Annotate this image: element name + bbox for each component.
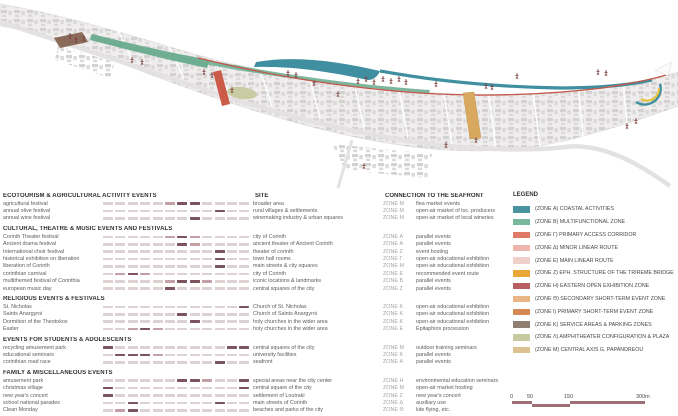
month-cell [165, 409, 175, 412]
month-cell [140, 250, 150, 253]
month-cell [103, 258, 113, 261]
month-cell [227, 210, 237, 213]
connection-cell: parallel events [416, 234, 508, 240]
month-cell [165, 328, 175, 331]
event-row: Ancient drama festivalancient theater of… [3, 241, 508, 248]
scale-segment [532, 404, 570, 407]
month-cell [227, 280, 237, 283]
month-cell [177, 354, 187, 357]
month-matrix [103, 361, 253, 364]
section-header-row: FAMILY & MISCELLANEOUS EVENTS [3, 368, 508, 376]
site-cell: Church of Saints Anargyroi [253, 311, 383, 317]
month-cell [190, 202, 200, 205]
connection-cell: auxiliary use [416, 400, 508, 406]
event-row: annual wine festivalwinemaking industry … [3, 215, 508, 222]
event-row: school national paradesmain streets of C… [3, 399, 508, 406]
month-cell [103, 236, 113, 239]
month-cell [239, 202, 249, 205]
month-cell [215, 280, 225, 283]
zone-cell: ZONE Μ [383, 208, 416, 214]
event-row: amusement parkspecial areas near the cit… [3, 377, 508, 384]
event-label: Corinth Theater festival [3, 234, 103, 240]
event-row: corinthian carnivalcity of CorinthZONE Ε… [3, 270, 508, 277]
month-cell [115, 210, 125, 213]
month-cell [153, 409, 163, 412]
month-cell [153, 313, 163, 316]
month-cell [128, 379, 138, 382]
event-row: european music daycentral squares of the… [3, 285, 508, 292]
site-cell: city of Corinth [253, 234, 383, 240]
month-cell [128, 354, 138, 357]
month-cell [177, 250, 187, 253]
month-cell [153, 402, 163, 405]
month-cell [202, 313, 212, 316]
month-cell [190, 313, 200, 316]
month-cell [177, 379, 187, 382]
month-matrix [103, 346, 253, 349]
month-cell [177, 402, 187, 405]
month-cell [140, 202, 150, 205]
month-cell [115, 387, 125, 390]
legend-label: (ZONE Α) COASTAL ACTIVITIES [535, 206, 614, 212]
connection-cell: open-air market of loc. producers [416, 208, 508, 214]
month-cell [103, 313, 113, 316]
site-cell: seafront [253, 359, 383, 365]
event-label: Saints Anargyroi [3, 311, 103, 317]
event-row: St. NicholasChurch of St. NicholasZONE Κ… [3, 303, 508, 310]
month-cell [227, 236, 237, 239]
month-cell [153, 354, 163, 357]
month-cell [190, 354, 200, 357]
month-cell [190, 250, 200, 253]
month-cell [128, 202, 138, 205]
zone-cell: ZONE Η [383, 378, 416, 384]
month-cell [115, 236, 125, 239]
event-row: christmas villagecentral square of the c… [3, 384, 508, 391]
month-cell [103, 287, 113, 290]
month-matrix [103, 394, 253, 397]
month-matrix [103, 306, 253, 309]
month-cell [227, 265, 237, 268]
section-header: FAMILY & MISCELLANEOUS EVENTS [3, 370, 255, 376]
month-cell [140, 313, 150, 316]
month-cell [153, 287, 163, 290]
connection-cell: new year's concert [416, 393, 508, 399]
site-cell: main streets & city squares [253, 263, 383, 269]
month-cell [215, 273, 225, 276]
site-cell: winemaking industry & urban squares [253, 215, 383, 221]
month-cell [165, 361, 175, 364]
month-matrix [103, 280, 253, 283]
legend-label: (ZONE Γ) PRIMARY ACCESS CORRIDOR [535, 232, 636, 238]
legend-item: (ZONE Ι) PRIMARY SHORT-TERM EVENT ZONE [513, 305, 676, 318]
section-header: EVENTS FOR STUDENTS & ADOLESCENTS [3, 337, 255, 343]
month-cell [140, 361, 150, 364]
month-cell [190, 387, 200, 390]
month-cell [215, 265, 225, 268]
legend-swatch [513, 257, 530, 264]
event-label: Easter [3, 326, 103, 332]
event-label: Clean Monday [3, 407, 103, 413]
month-cell [103, 210, 113, 213]
month-cell [177, 306, 187, 309]
month-cell [190, 273, 200, 276]
legend-item: (ZONE Γ) PRIMARY ACCESS CORRIDOR [513, 229, 676, 242]
zone-cell: ZONE Ζ [383, 286, 416, 292]
month-cell [140, 320, 150, 323]
month-cell [215, 379, 225, 382]
month-cell [202, 210, 212, 213]
zone-cell: ZONE Κ [383, 319, 416, 325]
month-cell [202, 250, 212, 253]
month-matrix [103, 202, 253, 205]
month-cell [153, 320, 163, 323]
month-cell [128, 306, 138, 309]
month-cell [239, 320, 249, 323]
month-cell [128, 287, 138, 290]
month-cell [202, 361, 212, 364]
month-cell [177, 243, 187, 246]
month-cell [202, 243, 212, 246]
month-cell [239, 402, 249, 405]
month-cell [239, 280, 249, 283]
legend-label: (ZONE Κ) SERVICE AREAS & PARKING ZONES [535, 322, 652, 328]
legend-label: (ZONE Λ) AMPHITHEATER CONFIGURATION & PL… [535, 334, 669, 340]
month-cell [239, 273, 249, 276]
legend-item: (ZONE Η) EASTERN OPEN EXHIBITION ZONE [513, 280, 676, 293]
month-cell [227, 361, 237, 364]
month-cell [227, 202, 237, 205]
month-cell [128, 280, 138, 283]
event-row: multithemed festival of Corinthiaiconic … [3, 278, 508, 285]
month-cell [153, 328, 163, 331]
month-cell [128, 210, 138, 213]
site-cell: ancient theater of Ancient Corinth [253, 241, 383, 247]
month-cell [202, 258, 212, 261]
connection-cell: parallel events [416, 286, 508, 292]
connection-column-header: CONNECTION TO THE SEAFRONT [385, 193, 508, 199]
month-cell [177, 202, 187, 205]
legend-swatch [513, 270, 530, 277]
month-cell [165, 265, 175, 268]
month-cell [239, 217, 249, 220]
legend-label: (ZONE Η) EASTERN OPEN EXHIBITION ZONE [535, 283, 649, 289]
month-cell [239, 265, 249, 268]
month-cell [239, 306, 249, 309]
month-cell [190, 217, 200, 220]
section-header-row: CULTURAL, THEATRE & MUSIC EVENTS AND FES… [3, 224, 508, 232]
legend-label: (ZONE Μ) CENTRAL AXIS G. PAPANDREOU [535, 347, 643, 353]
month-cell [115, 280, 125, 283]
event-label: liberation of Corinth [3, 263, 103, 269]
month-cell [140, 210, 150, 213]
month-cell [140, 243, 150, 246]
month-matrix [103, 387, 253, 390]
month-cell [202, 320, 212, 323]
legend-label: (ZONE Ι) PRIMARY SHORT-TERM EVENT ZONE [535, 309, 653, 315]
month-cell [215, 313, 225, 316]
connection-cell: parallel events [416, 278, 508, 284]
month-cell [215, 243, 225, 246]
event-label: annual wine festival [3, 215, 103, 221]
event-label: new year's concert [3, 393, 103, 399]
month-cell [103, 328, 113, 331]
month-cell [177, 320, 187, 323]
event-row: Corinth Theater festivalcity of CorinthZ… [3, 233, 508, 240]
month-cell [153, 346, 163, 349]
month-cell [153, 210, 163, 213]
month-cell [140, 273, 150, 276]
month-cell [115, 409, 125, 412]
month-cell [153, 217, 163, 220]
legend-swatch [513, 309, 530, 316]
month-cell [153, 280, 163, 283]
scale-bar: 0 50 150 300m [510, 394, 660, 410]
month-matrix [103, 379, 253, 382]
month-cell [215, 320, 225, 323]
event-row: Clean Mondaybeaches and parks of the cit… [3, 407, 508, 414]
site-cell: beaches and parks of the city [253, 407, 383, 413]
month-cell [115, 243, 125, 246]
month-cell [115, 354, 125, 357]
month-cell [227, 409, 237, 412]
month-cell [177, 265, 187, 268]
event-label: european music day [3, 286, 103, 292]
legend-swatch [513, 334, 530, 341]
month-cell [190, 265, 200, 268]
month-cell [215, 217, 225, 220]
section-header: CULTURAL, THEATRE & MUSIC EVENTS AND FES… [3, 226, 255, 232]
scale-label-50: 50 [527, 394, 533, 400]
event-label: historical exhibition on liberation [3, 256, 103, 262]
month-cell [115, 287, 125, 290]
month-cell [190, 236, 200, 239]
month-cell [128, 250, 138, 253]
month-matrix [103, 313, 253, 316]
month-cell [177, 394, 187, 397]
event-row: Dormition of the Theotokosholy churches … [3, 318, 508, 325]
month-cell [115, 379, 125, 382]
month-cell [177, 287, 187, 290]
month-cell [190, 379, 200, 382]
month-cell [140, 280, 150, 283]
month-cell [202, 328, 212, 331]
month-cell [140, 236, 150, 239]
legend-swatch [513, 347, 530, 354]
month-cell [239, 287, 249, 290]
month-matrix [103, 402, 253, 405]
month-cell [165, 280, 175, 283]
site-cell: central square of the city [253, 385, 383, 391]
month-cell [165, 202, 175, 205]
month-matrix [103, 409, 253, 412]
month-cell [190, 328, 200, 331]
month-cell [202, 202, 212, 205]
month-matrix [103, 258, 253, 261]
site-cell: settlement of Loutraki [253, 393, 383, 399]
month-cell [140, 306, 150, 309]
event-label: christmas village [3, 385, 103, 391]
month-matrix [103, 320, 253, 323]
month-cell [165, 243, 175, 246]
month-cell [215, 402, 225, 405]
month-matrix [103, 354, 253, 357]
month-cell [115, 361, 125, 364]
month-cell [103, 320, 113, 323]
event-row: corinthian road raceseafrontZONE Αparall… [3, 359, 508, 366]
month-matrix [103, 328, 253, 331]
zone-cell: ZONE Μ [383, 215, 416, 221]
month-cell [153, 243, 163, 246]
month-cell [165, 387, 175, 390]
month-cell [239, 394, 249, 397]
month-cell [227, 394, 237, 397]
month-cell [128, 328, 138, 331]
month-cell [128, 217, 138, 220]
month-cell [177, 210, 187, 213]
month-cell [239, 210, 249, 213]
month-cell [128, 394, 138, 397]
month-cell [215, 354, 225, 357]
event-label: Dormition of the Theotokos [3, 319, 103, 325]
month-cell [239, 258, 249, 261]
month-cell [115, 313, 125, 316]
zone-cell: ZONE Α [383, 241, 416, 247]
month-cell [202, 265, 212, 268]
month-cell [103, 402, 113, 405]
month-cell [153, 250, 163, 253]
month-cell [215, 361, 225, 364]
connection-cell: open-air market of local wineries [416, 215, 508, 221]
month-cell [202, 287, 212, 290]
site-cell: iconic locations & landmarks [253, 278, 383, 284]
legend-swatch [513, 232, 530, 239]
connection-cell: open-air educational exhibition [416, 319, 508, 325]
month-cell [227, 217, 237, 220]
month-cell [215, 250, 225, 253]
month-cell [165, 306, 175, 309]
event-label: Ancient drama festival [3, 241, 103, 247]
month-cell [202, 409, 212, 412]
month-cell [103, 379, 113, 382]
month-cell [215, 210, 225, 213]
month-cell [190, 409, 200, 412]
month-cell [215, 394, 225, 397]
month-cell [140, 346, 150, 349]
zone-cell: ZONE Κ [383, 352, 416, 358]
legend-item: (ZONE Μ) CENTRAL AXIS G. PAPANDREOU [513, 344, 676, 357]
month-cell [103, 250, 113, 253]
month-cell [128, 258, 138, 261]
month-cell [227, 387, 237, 390]
month-cell [227, 328, 237, 331]
zone-cell: ZONE Μ [383, 263, 416, 269]
month-cell [227, 306, 237, 309]
month-cell [202, 306, 212, 309]
connection-cell: flea market events [416, 201, 508, 207]
event-row: agricultural festivalbroader areaZONE Μf… [3, 200, 508, 207]
legend-item: (ZONE Β) MULTIFUNCTIONAL ZONE [513, 216, 676, 229]
month-cell [190, 394, 200, 397]
month-cell [177, 328, 187, 331]
legend-title: LEGEND [513, 192, 676, 198]
month-matrix [103, 243, 253, 246]
month-cell [177, 361, 187, 364]
month-cell [190, 258, 200, 261]
connection-cell: parallel events [416, 359, 508, 365]
month-cell [177, 217, 187, 220]
month-cell [115, 250, 125, 253]
site-cell: theater of corinth [253, 249, 383, 255]
events-table: ECOTOURISM & AGRICULTURAL ACTIVITY EVENT… [3, 189, 508, 414]
month-cell [227, 313, 237, 316]
month-cell [215, 387, 225, 390]
event-row: Saints AnargyroiChurch of Saints Anargyr… [3, 311, 508, 318]
section-header-row: EVENTS FOR STUDENTS & ADOLESCENTS [3, 335, 508, 343]
month-cell [202, 394, 212, 397]
legend-item: (ZONE Θ) SECONDARY SHORT-TERM EVENT ZONE [513, 293, 676, 306]
zone-cell: ZONE Ζ [383, 393, 416, 399]
month-cell [140, 379, 150, 382]
month-cell [239, 243, 249, 246]
month-matrix [103, 210, 253, 213]
zone-cell: ZONE Β [383, 278, 416, 284]
zone-cell: ZONE Μ [383, 345, 416, 351]
month-cell [140, 409, 150, 412]
month-cell [115, 394, 125, 397]
event-label: corinthian road race [3, 359, 103, 365]
month-cell [227, 273, 237, 276]
month-cell [239, 250, 249, 253]
scale-label-150: 150 [564, 394, 573, 400]
month-cell [177, 346, 187, 349]
event-label: multithemed festival of Corinthia [3, 278, 103, 284]
connection-cell: open-air educational exhibition [416, 304, 508, 310]
month-cell [227, 354, 237, 357]
month-cell [177, 313, 187, 316]
event-label: school national parades [3, 400, 103, 406]
zone-cell: ZONE Ε [383, 326, 416, 332]
month-cell [215, 328, 225, 331]
month-matrix [103, 217, 253, 220]
event-row: historical exhibition on liberationtown … [3, 255, 508, 262]
legend-item: (ZONE Ε) MAIN LINEAR ROUTE [513, 254, 676, 267]
month-cell [140, 287, 150, 290]
month-cell [103, 306, 113, 309]
scale-label-300m: 300m [636, 394, 650, 400]
month-cell [202, 346, 212, 349]
month-cell [115, 258, 125, 261]
month-cell [215, 346, 225, 349]
month-cell [177, 280, 187, 283]
month-cell [153, 265, 163, 268]
month-cell [153, 202, 163, 205]
event-label: amusement park [3, 378, 103, 384]
month-cell [165, 210, 175, 213]
legend-label: (ZONE Δ) MINOR LINEAR ROUTE [535, 245, 618, 251]
connection-cell: Epitaphios procession [416, 326, 508, 332]
month-matrix [103, 236, 253, 239]
month-cell [103, 202, 113, 205]
month-cell [239, 313, 249, 316]
month-cell [103, 387, 113, 390]
month-cell [227, 287, 237, 290]
month-cell [128, 346, 138, 349]
month-cell [165, 236, 175, 239]
legend-items: (ZONE Α) COASTAL ACTIVITIES(ZONE Β) MULT… [513, 203, 676, 357]
month-cell [128, 265, 138, 268]
site-cell: university facilities [253, 352, 383, 358]
